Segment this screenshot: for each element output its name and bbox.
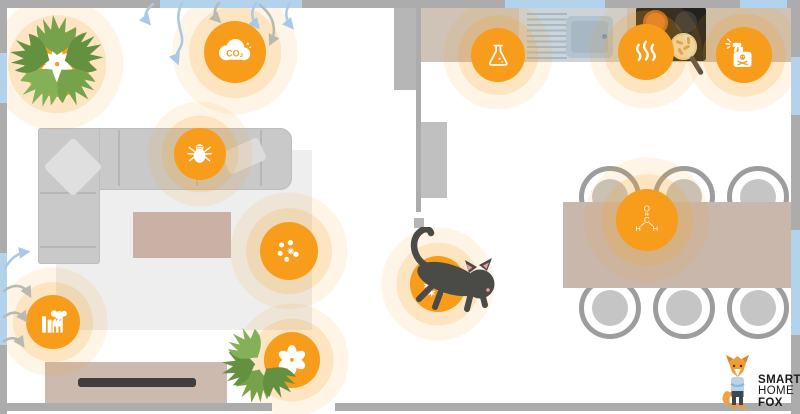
kitchen-cabinet [421,122,447,198]
houseplant-top [1,7,113,119]
wall-top [0,0,800,8]
sofa-cushion-seam [118,130,120,186]
dust-mite-icon[interactable] [174,128,226,180]
flask-icon[interactable] [471,28,525,82]
window-top-kitchen [505,0,605,8]
co2-cloud-glyph: CO₂ [215,32,255,72]
atom-hydrogen-left: H [636,224,641,233]
co2-cloud-icon[interactable]: CO₂ [204,21,266,83]
coffee-table [133,212,231,258]
chair-seat [666,290,702,326]
chair-seat [592,290,628,326]
airflow-arrow-blue [5,252,26,268]
floorplan-illustration: CO₂ [0,0,800,414]
fox-foot [731,405,738,409]
fox-pants [732,391,744,397]
chair-seat [740,290,776,326]
formaldehyde-molecule-icon[interactable]: O C H H [616,189,678,251]
formaldehyde-glyph: O C H H [627,200,667,240]
fox-eye [733,365,735,367]
window-left-lower [0,253,7,345]
cat-tail [414,229,431,267]
fox-foot [739,405,746,409]
logo-line-2: HOME [758,386,800,398]
particles-glyph [270,232,307,269]
window-top-left [160,0,302,8]
steam-icon[interactable] [618,24,674,80]
wall-divider-block [394,4,416,90]
logo-line-3: FOX [758,398,800,410]
houseplant-bottom [214,315,310,411]
cat-head [466,270,495,299]
sofa-cushion-seam [40,246,96,248]
window-right-upper [791,57,800,115]
factory-icon[interactable] [26,295,80,349]
fox-leg [732,397,736,406]
fox-leg [739,397,743,406]
brand-logo: SMART HOME FOX [720,353,800,409]
factory-glyph [36,305,71,340]
atom-hydrogen-right: H [653,224,658,233]
atom-carbon: C [644,216,650,225]
spray-bottle-icon[interactable] [716,27,772,83]
tv [78,378,196,387]
window-right-lower [791,230,800,335]
fox-mascot [720,353,754,409]
spray-bottle-glyph [726,37,762,73]
fox-eye [740,365,742,367]
logo-text: SMART HOME FOX [758,375,800,410]
wall-divider [416,0,421,212]
flask-glyph [481,38,516,73]
steam-glyph [628,34,664,70]
atom-oxygen: O [644,205,650,214]
cat-nose [486,288,490,292]
particles-icon[interactable] [260,222,318,280]
cat-illustration [383,227,507,321]
dust-mite-glyph [183,137,216,170]
co2-label: CO₂ [226,48,243,58]
window-top-right [740,0,787,8]
